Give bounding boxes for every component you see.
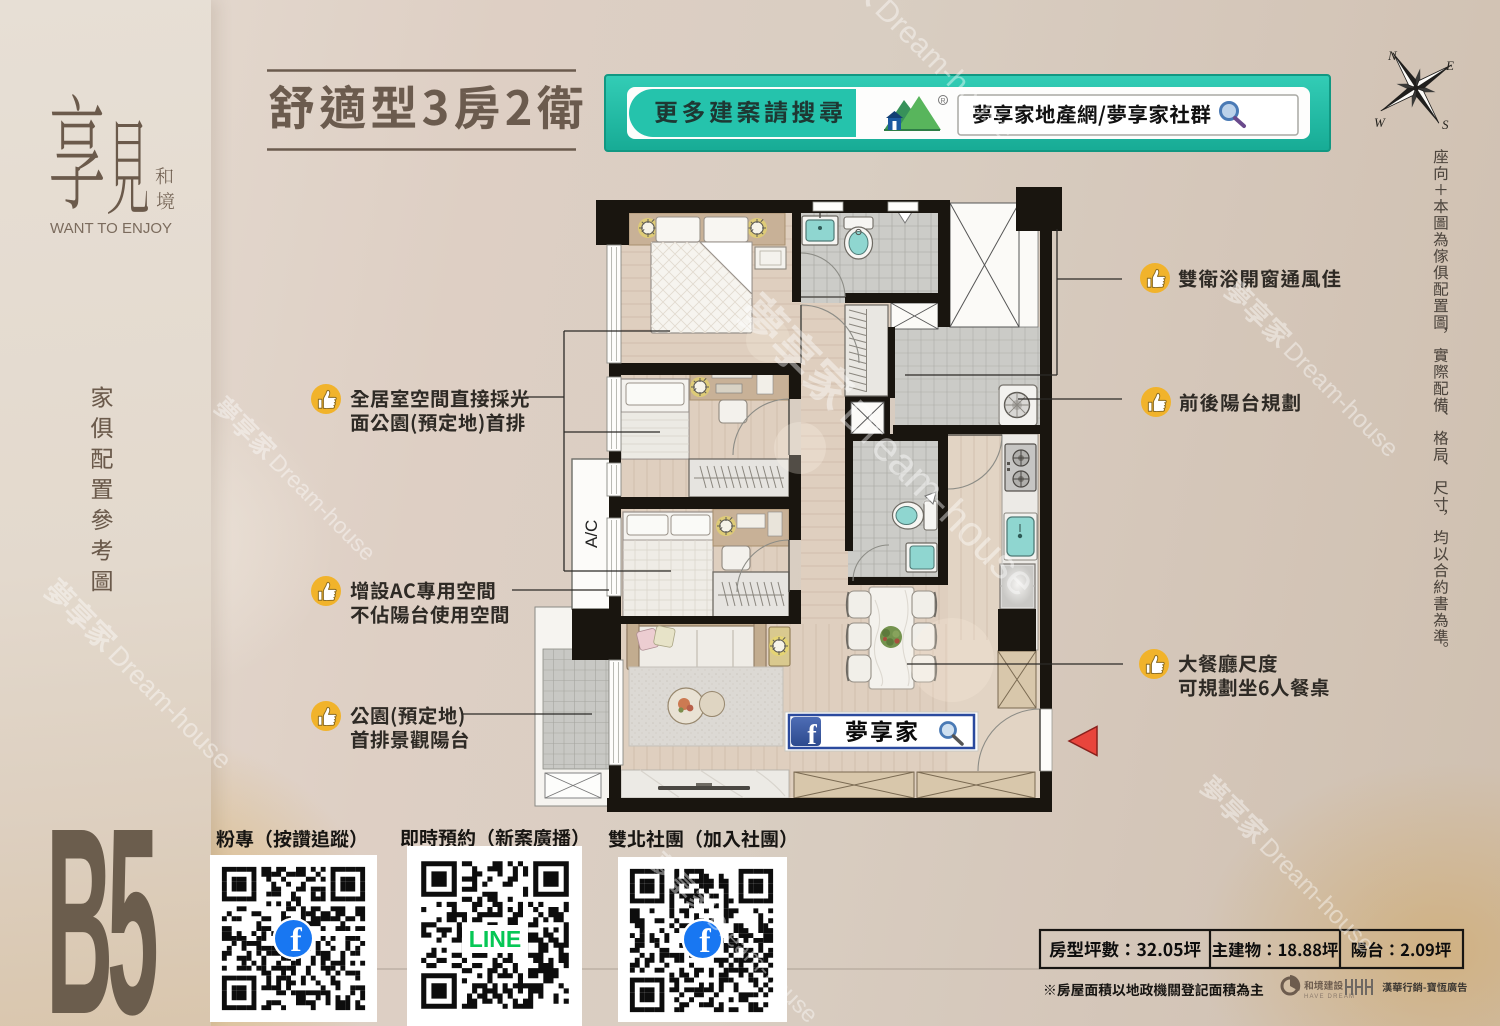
svg-text:Dream-house: Dream-house bbox=[102, 640, 237, 775]
svg-text:Dream-house: Dream-house bbox=[831, 391, 1045, 605]
svg-text:E: E bbox=[1445, 58, 1454, 73]
svg-text:f: f bbox=[807, 720, 817, 751]
svg-text:f: f bbox=[290, 922, 302, 959]
svg-text:Dream-house: Dream-house bbox=[264, 449, 381, 566]
svg-text:Dream-house: Dream-house bbox=[1278, 337, 1403, 462]
svg-text:WANT TO ENJOY: WANT TO ENJOY bbox=[50, 220, 172, 237]
svg-text:R: R bbox=[940, 98, 945, 105]
svg-text:B5: B5 bbox=[46, 774, 156, 1026]
svg-text:N: N bbox=[1387, 48, 1398, 63]
svg-text:Dream-house: Dream-house bbox=[1254, 833, 1379, 958]
svg-text:HAVE DREAM: HAVE DREAM bbox=[1304, 994, 1355, 1000]
svg-text:W: W bbox=[1374, 115, 1386, 130]
svg-text:LINE: LINE bbox=[469, 926, 521, 952]
svg-text:S: S bbox=[1442, 117, 1449, 132]
